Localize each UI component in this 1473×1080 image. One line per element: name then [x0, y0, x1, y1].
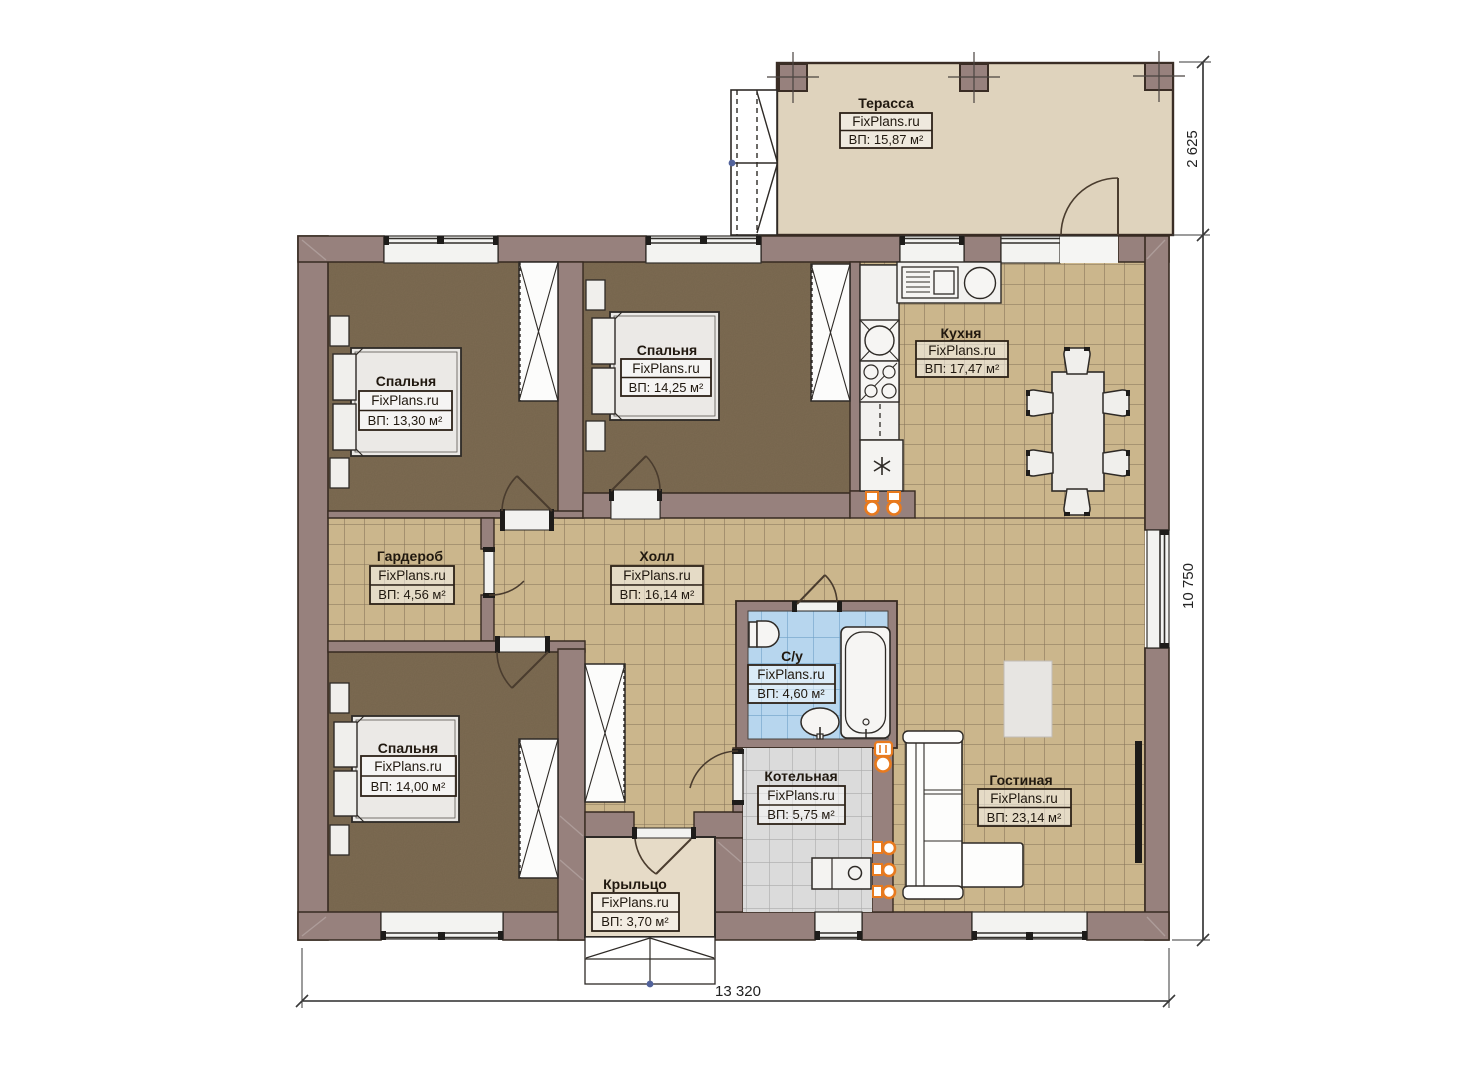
svg-text:Терасса: Терасса — [858, 95, 914, 111]
svg-text:ВП: 13,30 м²: ВП: 13,30 м² — [368, 413, 443, 428]
svg-text:Спальня: Спальня — [637, 342, 697, 358]
svg-text:FixPlans.ru: FixPlans.ru — [623, 568, 691, 583]
svg-text:ВП: 4,60 м²: ВП: 4,60 м² — [757, 686, 825, 701]
svg-text:Гардероб: Гардероб — [377, 548, 444, 564]
svg-text:Спальня: Спальня — [378, 740, 438, 756]
svg-text:FixPlans.ru: FixPlans.ru — [378, 568, 446, 583]
svg-text:FixPlans.ru: FixPlans.ru — [371, 393, 439, 408]
svg-text:Кухня: Кухня — [941, 325, 982, 341]
svg-text:Крыльцо: Крыльцо — [603, 876, 667, 892]
svg-text:10 750: 10 750 — [1180, 563, 1197, 609]
svg-text:ВП: 3,70 м²: ВП: 3,70 м² — [601, 914, 669, 929]
svg-text:ВП: 15,87 м²: ВП: 15,87 м² — [849, 132, 924, 147]
svg-text:Спальня: Спальня — [376, 373, 436, 389]
svg-text:FixPlans.ru: FixPlans.ru — [757, 667, 825, 682]
svg-text:ВП: 17,47 м²: ВП: 17,47 м² — [925, 361, 1000, 376]
svg-text:2 625: 2 625 — [1184, 130, 1201, 168]
svg-text:FixPlans.ru: FixPlans.ru — [632, 361, 700, 376]
svg-text:ВП: 14,25 м²: ВП: 14,25 м² — [629, 380, 704, 395]
svg-text:ВП: 16,14 м²: ВП: 16,14 м² — [620, 587, 695, 602]
svg-text:ВП: 5,75 м²: ВП: 5,75 м² — [767, 807, 835, 822]
svg-text:FixPlans.ru: FixPlans.ru — [767, 788, 835, 803]
svg-text:С/у: С/у — [781, 648, 803, 664]
svg-text:13 320: 13 320 — [715, 983, 761, 1000]
svg-text:FixPlans.ru: FixPlans.ru — [601, 895, 669, 910]
svg-text:Холл: Холл — [639, 548, 674, 564]
svg-text:FixPlans.ru: FixPlans.ru — [852, 114, 920, 129]
svg-text:ВП: 23,14 м²: ВП: 23,14 м² — [987, 810, 1062, 825]
svg-text:Котельная: Котельная — [764, 768, 837, 784]
svg-text:FixPlans.ru: FixPlans.ru — [928, 343, 996, 358]
svg-text:ВП: 14,00 м²: ВП: 14,00 м² — [371, 779, 446, 794]
svg-text:FixPlans.ru: FixPlans.ru — [990, 791, 1058, 806]
svg-text:ВП: 4,56 м²: ВП: 4,56 м² — [378, 587, 446, 602]
svg-text:FixPlans.ru: FixPlans.ru — [374, 759, 442, 774]
svg-text:Гостиная: Гостиная — [989, 772, 1052, 788]
